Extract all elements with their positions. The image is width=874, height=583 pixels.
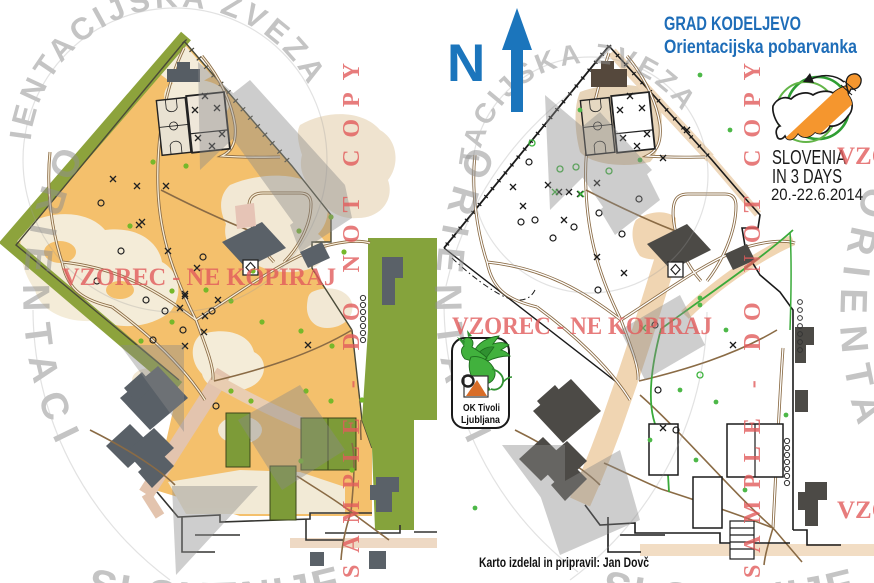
svg-text:VZOR: VZOR <box>837 497 874 524</box>
svg-text:Karto izdelal in pripravil: Ja: Karto izdelal in pripravil: Jan Dovč <box>479 554 649 570</box>
svg-text:VZOREC - NE KOPIRAJ: VZOREC - NE KOPIRAJ <box>62 264 336 291</box>
svg-text:Orientacijska pobarvanka: Orientacijska pobarvanka <box>664 37 857 58</box>
svg-text:N: N <box>447 34 485 93</box>
svg-text:20.-22.6.2014: 20.-22.6.2014 <box>771 185 863 204</box>
svg-text:Ljubljana: Ljubljana <box>461 414 500 426</box>
svg-text:VZOR: VZOR <box>837 143 874 170</box>
svg-text:GRAD KODELJEVO: GRAD KODELJEVO <box>664 14 801 35</box>
svg-text:OK Tivoli: OK Tivoli <box>463 402 500 414</box>
svg-text:VZOREC - NE KOPIRAJ: VZOREC - NE KOPIRAJ <box>452 313 712 340</box>
